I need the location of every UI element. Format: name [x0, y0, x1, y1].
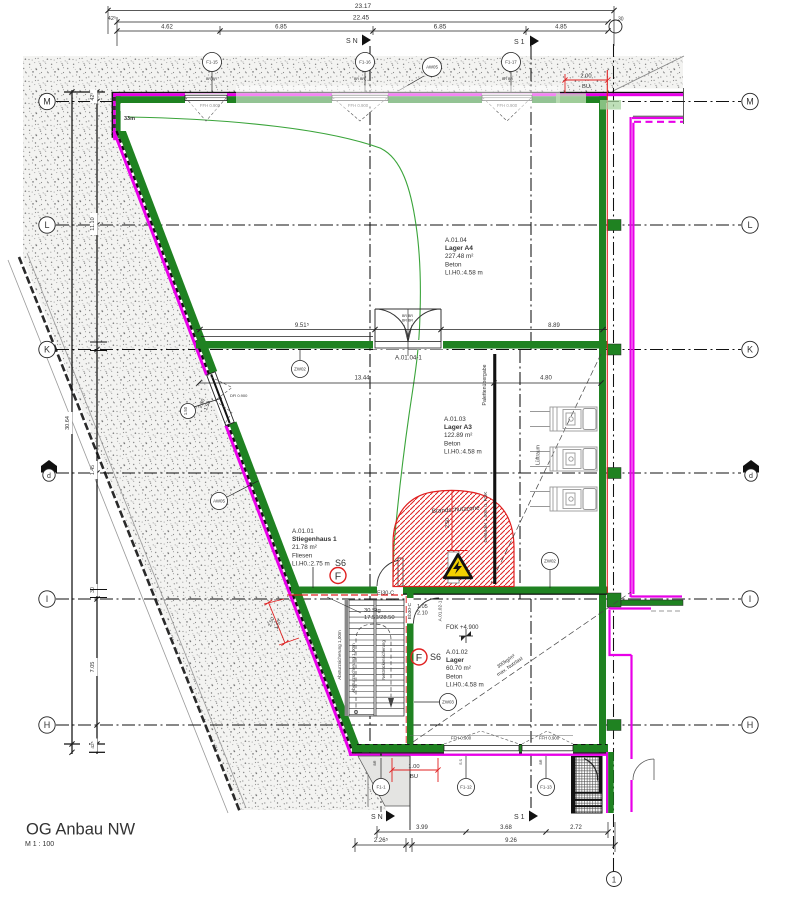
- svg-text:M: M: [43, 97, 51, 107]
- svg-text:Beton: Beton: [444, 440, 461, 447]
- svg-text:9.26: 9.26: [505, 838, 517, 844]
- svg-text:42⁵: 42⁵: [90, 741, 96, 748]
- svg-text:DFl 0.900: DFl 0.900: [230, 393, 248, 398]
- svg-text:ZW02: ZW02: [294, 367, 306, 372]
- svg-text:A.01.02-1: A.01.02-1: [438, 600, 444, 621]
- svg-text:M 1 : 100: M 1 : 100: [25, 841, 54, 848]
- svg-text:BU: BU: [410, 774, 418, 780]
- svg-text:21.78 m²: 21.78 m²: [292, 544, 317, 551]
- svg-text:FFH 0.900: FFH 0.900: [451, 736, 472, 741]
- svg-text:S S: S S: [459, 759, 463, 765]
- svg-text:2.10: 2.10: [417, 611, 428, 617]
- svg-text:M: M: [746, 97, 754, 107]
- svg-text:23.17: 23.17: [355, 3, 372, 10]
- svg-text:L: L: [747, 220, 752, 230]
- svg-text:30 Stg: 30 Stg: [364, 608, 381, 614]
- svg-text:BR: BR: [539, 759, 543, 764]
- svg-text:BR BR: BR BR: [354, 77, 365, 81]
- svg-text:9.51⁵: 9.51⁵: [295, 322, 310, 329]
- svg-text:42⁵: 42⁵: [108, 15, 116, 22]
- svg-text:K: K: [44, 345, 50, 355]
- svg-text:2.50: 2.50: [445, 518, 451, 528]
- svg-text:BR BR: BR BR: [502, 77, 513, 81]
- svg-text:BR BR: BR BR: [402, 319, 413, 323]
- svg-text:d: d: [749, 473, 753, 480]
- svg-text:2.00: 2.00: [580, 74, 591, 80]
- svg-text:BR BR: BR BR: [206, 77, 217, 81]
- svg-text:7.05: 7.05: [90, 662, 96, 673]
- svg-text:60.70 m²: 60.70 m²: [446, 665, 471, 672]
- svg-text:3.68: 3.68: [500, 825, 512, 831]
- svg-text:A.01.01: A.01.01: [292, 528, 314, 535]
- svg-text:30.64: 30.64: [65, 416, 71, 430]
- svg-text:Eb30-C: Eb30-C: [407, 602, 413, 619]
- svg-text:F: F: [416, 652, 422, 664]
- svg-text:OG Anbau NW: OG Anbau NW: [26, 821, 136, 839]
- svg-text:LI.H0.:2.75 m: LI.H0.:2.75 m: [292, 560, 330, 567]
- svg-text:F1-13: F1-13: [540, 785, 552, 790]
- svg-text:FFH 0.900: FFH 0.900: [539, 736, 560, 741]
- svg-text:Fliesen: Fliesen: [292, 552, 313, 559]
- svg-text:K: K: [747, 345, 753, 355]
- svg-text:2.72: 2.72: [570, 825, 582, 831]
- svg-text:S N: S N: [346, 38, 358, 45]
- svg-text:A.01.02: A.01.02: [446, 649, 468, 656]
- svg-text:Geländer 1.00m ü. FOK: Geländer 1.00m ü. FOK: [483, 491, 489, 543]
- svg-text:d: d: [47, 473, 51, 480]
- svg-text:LI.H0.:4.58 m: LI.H0.:4.58 m: [444, 448, 482, 455]
- svg-text:2.26⁵: 2.26⁵: [374, 837, 389, 844]
- svg-text:1.00: 1.00: [408, 764, 419, 770]
- svg-text:Lager A3: Lager A3: [444, 424, 472, 431]
- svg-text:I: I: [749, 594, 752, 604]
- svg-text:Beton: Beton: [446, 673, 463, 680]
- svg-text:122.89 m²: 122.89 m²: [444, 432, 472, 439]
- svg-text:13.44: 13.44: [354, 376, 370, 382]
- svg-text:S N: S N: [371, 814, 383, 821]
- svg-text:FOK +4.900: FOK +4.900: [446, 625, 479, 631]
- svg-text:S6: S6: [430, 652, 441, 662]
- svg-text:F1-15: F1-15: [206, 60, 218, 65]
- svg-text:H: H: [44, 720, 51, 730]
- svg-text:F1-17: F1-17: [505, 60, 517, 65]
- svg-text:F1-1: F1-1: [376, 785, 386, 790]
- svg-text:Beton: Beton: [445, 261, 462, 268]
- svg-text:A.01.03: A.01.03: [444, 416, 466, 423]
- svg-text:ZW03: ZW03: [442, 700, 454, 705]
- svg-text:Lager A4: Lager A4: [445, 245, 473, 252]
- svg-text:A.01.04: A.01.04: [445, 237, 467, 244]
- svg-text:33m: 33m: [124, 116, 135, 122]
- svg-text:11.10: 11.10: [90, 217, 96, 230]
- svg-text:LI.H0.:4.58 m: LI.H0.:4.58 m: [445, 269, 483, 276]
- svg-text:Absturzsicherung 1,00m: Absturzsicherung 1,00m: [337, 630, 342, 680]
- svg-text:3.99: 3.99: [416, 825, 428, 831]
- svg-text:4.80: 4.80: [540, 376, 552, 382]
- svg-text:6.85: 6.85: [275, 25, 287, 31]
- svg-text:BR: BR: [373, 760, 377, 765]
- svg-text:Lager: Lager: [446, 657, 464, 664]
- svg-text:ZW02: ZW02: [544, 559, 556, 564]
- svg-text:LI.H0.:4.58 m: LI.H0.:4.58 m: [446, 681, 484, 688]
- svg-text:42⁵: 42⁵: [90, 93, 96, 101]
- svg-text:S6: S6: [335, 558, 346, 568]
- svg-text:Absturzsicherung 1,00m: Absturzsicherung 1,00m: [351, 643, 356, 693]
- svg-text:Lüftraum: Lüftraum: [536, 445, 542, 465]
- svg-text:4.62: 4.62: [161, 25, 173, 31]
- svg-text:1.45: 1.45: [90, 465, 96, 475]
- svg-text:17.50/28.50: 17.50/28.50: [364, 615, 395, 621]
- svg-text:I: I: [46, 594, 49, 604]
- svg-text:227.48 m²: 227.48 m²: [445, 253, 473, 260]
- svg-text:Nestrückensicherung: Nestrückensicherung: [381, 640, 386, 680]
- svg-text:Palettenübergabe: Palettenübergabe: [482, 364, 488, 405]
- svg-text:F1-12: F1-12: [460, 785, 472, 790]
- svg-text:AW05: AW05: [213, 499, 225, 504]
- svg-text:L: L: [44, 220, 49, 230]
- svg-text:6.85: 6.85: [434, 24, 447, 31]
- svg-text:1.50: 1.50: [183, 406, 188, 415]
- svg-text:BU: BU: [582, 84, 590, 90]
- svg-text:8.89: 8.89: [548, 323, 560, 329]
- svg-text:1.05: 1.05: [417, 604, 428, 610]
- svg-text:22.45: 22.45: [353, 15, 370, 22]
- svg-text:30: 30: [618, 17, 624, 23]
- svg-text:AW05: AW05: [426, 65, 438, 70]
- svg-text:4.85: 4.85: [555, 25, 567, 31]
- svg-text:1: 1: [612, 876, 617, 885]
- svg-text:A.01.04-1: A.01.04-1: [395, 355, 422, 362]
- svg-text:S 1: S 1: [514, 814, 525, 821]
- svg-text:H: H: [747, 720, 754, 730]
- svg-text:F1-16: F1-16: [359, 60, 371, 65]
- svg-text:Stiegenhaus 1: Stiegenhaus 1: [292, 536, 337, 543]
- svg-text:BR BR: BR BR: [402, 314, 413, 318]
- svg-text:S 1: S 1: [514, 39, 525, 46]
- svg-text:F: F: [335, 571, 341, 583]
